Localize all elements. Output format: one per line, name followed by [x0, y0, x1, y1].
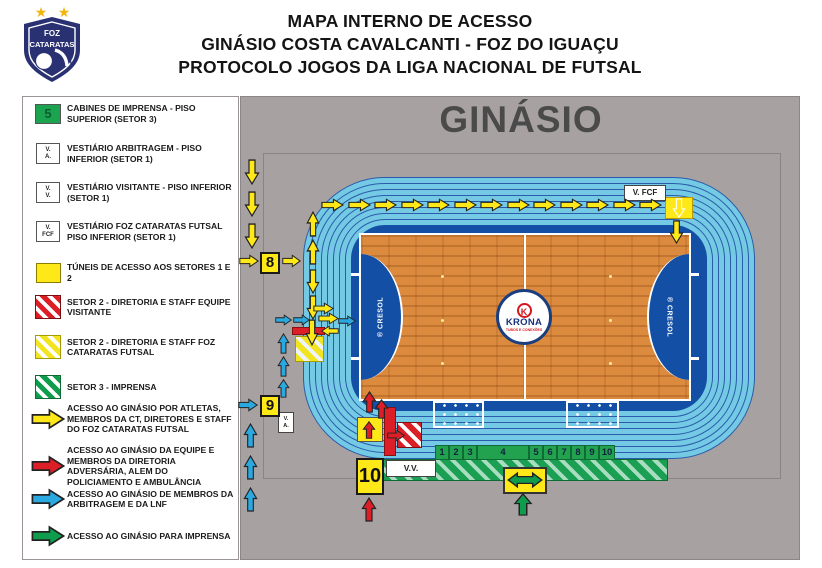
access-arrow-yellow	[244, 223, 260, 249]
legend-item-referee-lockers: V.A. VESTIÁRIO ARBITRAGEM - PISO INFERIO…	[29, 143, 233, 164]
access-arrow-yellow	[244, 191, 260, 217]
legend-item-foz-lockers: V.FCF VESTIÁRIO FOZ CATARATAS FUTSAL PIS…	[29, 221, 233, 242]
access-arrow-blue	[293, 314, 310, 326]
access-arrow-yellow	[669, 220, 684, 244]
gym-map: GINÁSIO ® CRESOL ® CRESOL K KRONA TUBOS …	[240, 96, 800, 560]
access-arrow-yellow	[31, 408, 65, 430]
gate-8: 8	[260, 252, 280, 274]
access-arrow-green	[507, 471, 543, 489]
court-mark	[441, 319, 444, 322]
logo-text-foz: FOZ	[44, 29, 60, 38]
visitor-locker-swatch: V.V.	[36, 182, 60, 203]
penalty-area-right: ® CRESOL	[647, 254, 689, 380]
court-tick	[351, 357, 359, 360]
gate-9: 9	[260, 395, 280, 417]
legend-item-access-visitor: ACESSO AO GINÁSIO DA EQUIPE E MEMBROS DA…	[29, 445, 233, 487]
access-arrow-blue	[243, 455, 258, 480]
penalty-area-left: ® CRESOL	[361, 254, 403, 380]
legend-item-sector2-foz: SETOR 2 - DIRETORIA E STAFF FOZ CATARATA…	[29, 335, 233, 359]
krona-brand: KRONA	[506, 318, 542, 328]
access-arrow-yellow	[348, 198, 371, 212]
access-arrow-yellow	[613, 198, 636, 212]
legend-item-access-press: ACESSO AO GINÁSIO PARA IMPRENSA	[29, 525, 233, 547]
cresol-brand-right: ® CRESOL	[666, 297, 673, 337]
access-arrow-blue	[277, 356, 290, 377]
court-mark	[441, 362, 444, 365]
access-arrow-yellow	[244, 159, 260, 185]
access-arrow-green	[513, 493, 533, 516]
access-arrow-yellow	[401, 198, 424, 212]
access-arrow-red	[374, 399, 389, 419]
access-arrow-yellow	[560, 198, 583, 212]
legend-item-tunnels: TÚNEIS DE ACESSO AOS SETORES 1 E 2	[29, 262, 233, 283]
section-box-9: 9	[585, 445, 599, 460]
section-box-7: 7	[557, 445, 571, 460]
svg-text:★: ★	[58, 4, 71, 20]
access-arrow-yellow	[318, 312, 339, 325]
legend-item-label: ACESSO AO GINÁSIO DE MEMBROS DA ARBITRAG…	[67, 489, 233, 510]
access-arrow-yellow	[239, 254, 259, 268]
access-arrow-green	[31, 525, 65, 547]
access-arrow-yellow	[282, 254, 301, 268]
section-box-6: 6	[543, 445, 557, 460]
access-arrow-yellow	[306, 239, 320, 265]
access-arrow-blue	[277, 379, 290, 398]
access-arrow-yellow	[533, 198, 556, 212]
gate-10: 10	[356, 458, 384, 495]
access-arrow-blue	[277, 333, 290, 354]
access-arrow-red	[362, 421, 376, 439]
access-arrow-yellow	[507, 198, 530, 212]
legend-item-label: ACESSO AO GINÁSIO DA EQUIPE E MEMBROS DA…	[67, 445, 233, 487]
court-mark	[441, 275, 444, 278]
court-tick	[691, 357, 699, 360]
legend-item-access-athletes: ACESSO AO GINÁSIO POR ATLETAS, MEMBROS D…	[29, 403, 233, 435]
blue-arrow-icon	[29, 488, 67, 510]
legend-item-sector2-visitor: SETOR 2 - DIRETORIA E STAFF EQUIPE VISIT…	[29, 295, 233, 319]
gym-title: GINÁSIO	[241, 99, 801, 141]
legend-item-label: VESTIÁRIO FOZ CATARATAS FUTSAL PISO INFE…	[67, 221, 233, 242]
foz-cataratas-logo: ★ ★ FOZ CATARATAS	[14, 2, 90, 84]
access-arrow-red	[31, 455, 65, 477]
access-arrow-red	[361, 497, 377, 522]
access-arrow-blue	[238, 398, 258, 412]
section-box-8: 8	[571, 445, 585, 460]
tunnel-swatch	[36, 263, 61, 283]
court-mark	[609, 319, 612, 322]
legend-item-label: VESTIÁRIO VISITANTE - PISO INFERIOR (SET…	[67, 182, 233, 203]
access-arrow-yellow	[672, 198, 686, 218]
court-mark	[609, 362, 612, 365]
center-circle-krona-logo: K KRONA TUBOS E CONEXÕES	[496, 289, 552, 345]
section-box-3: 3	[463, 445, 477, 460]
press-cabins-swatch: 5	[35, 104, 61, 124]
cresol-brand-left: ® CRESOL	[378, 297, 385, 337]
legend-item-label: TÚNEIS DE ACESSO AOS SETORES 1 E 2	[67, 262, 233, 283]
label-v-v: V.V.	[386, 460, 436, 477]
legend-item-label: VESTIÁRIO ARBITRAGEM - PISO INFERIOR (SE…	[67, 143, 233, 164]
access-arrow-blue	[243, 423, 258, 448]
team-bench-right	[566, 401, 619, 428]
legend-item-label: CABINES DE IMPRENSA - PISO SUPERIOR (SET…	[67, 103, 233, 124]
court-tick	[351, 273, 359, 276]
krona-k-icon: K	[517, 303, 532, 318]
svg-text:★: ★	[35, 4, 48, 20]
title-line-3: PROTOCOLO JOGOS DA LIGA NACIONAL DE FUTS…	[90, 56, 730, 79]
access-arrow-blue	[243, 487, 258, 512]
access-arrow-yellow	[427, 198, 450, 212]
access-arrow-yellow	[454, 198, 477, 212]
title-line-2: GINÁSIO COSTA CAVALCANTI - FOZ DO IGUAÇU	[90, 33, 730, 56]
access-arrow-yellow	[321, 325, 339, 337]
label-v-a: V.A.	[278, 412, 294, 433]
yellow-arrow-icon	[29, 408, 67, 430]
access-arrow-yellow	[639, 198, 662, 212]
krona-tagline: TUBOS E CONEXÕES	[506, 328, 542, 332]
section-box-10: 10	[599, 445, 615, 460]
access-arrow-blue	[31, 488, 65, 510]
legend-item-label: SETOR 2 - DIRETORIA E STAFF EQUIPE VISIT…	[67, 297, 233, 318]
section-box-4: 4	[477, 445, 529, 460]
access-arrow-yellow	[586, 198, 609, 212]
logo-text-cataratas: CATARATAS	[30, 40, 75, 49]
page-title: MAPA INTERNO DE ACESSO GINÁSIO COSTA CAV…	[90, 10, 730, 79]
access-arrow-yellow	[374, 198, 397, 212]
legend-item-sector3-press: SETOR 3 - IMPRENSA	[29, 375, 233, 399]
legend-item-access-referees: ACESSO AO GINÁSIO DE MEMBROS DA ARBITRAG…	[29, 488, 233, 510]
access-arrow-yellow	[480, 198, 503, 212]
legend-item-visitor-lockers: V.V. VESTIÁRIO VISITANTE - PISO INFERIOR…	[29, 182, 233, 203]
access-arrow-red	[387, 429, 405, 442]
sector2-foz-swatch	[35, 335, 61, 359]
access-arrow-blue	[338, 315, 356, 327]
foz-locker-swatch: V.FCF	[36, 221, 60, 242]
access-arrow-yellow	[306, 211, 320, 237]
green-arrow-icon	[29, 525, 67, 547]
legend-item-press-cabins: 5 CABINES DE IMPRENSA - PISO SUPERIOR (S…	[29, 103, 233, 124]
section-box-5: 5	[529, 445, 543, 460]
legend-item-label: SETOR 3 - IMPRENSA	[67, 382, 233, 393]
legend-item-label: ACESSO AO GINÁSIO POR ATLETAS, MEMBROS D…	[67, 403, 233, 435]
court-mark	[609, 275, 612, 278]
sector2-visitor-swatch	[35, 295, 61, 319]
access-arrow-yellow	[306, 269, 320, 294]
title-line-1: MAPA INTERNO DE ACESSO	[90, 10, 730, 33]
sector3-press-swatch	[35, 375, 61, 399]
access-arrow-blue	[275, 314, 292, 326]
section-box-1: 1	[435, 445, 449, 460]
referee-locker-swatch: V.A.	[36, 143, 60, 164]
legend-item-label: SETOR 2 - DIRETORIA E STAFF FOZ CATARATA…	[67, 337, 233, 358]
access-arrow-yellow	[321, 198, 344, 212]
team-bench-left	[433, 401, 484, 428]
court-tick	[691, 273, 699, 276]
section-box-2: 2	[449, 445, 463, 460]
legend-panel: 5 CABINES DE IMPRENSA - PISO SUPERIOR (S…	[22, 96, 239, 560]
legend-item-label: ACESSO AO GINÁSIO PARA IMPRENSA	[67, 531, 233, 542]
red-arrow-icon	[29, 455, 67, 477]
